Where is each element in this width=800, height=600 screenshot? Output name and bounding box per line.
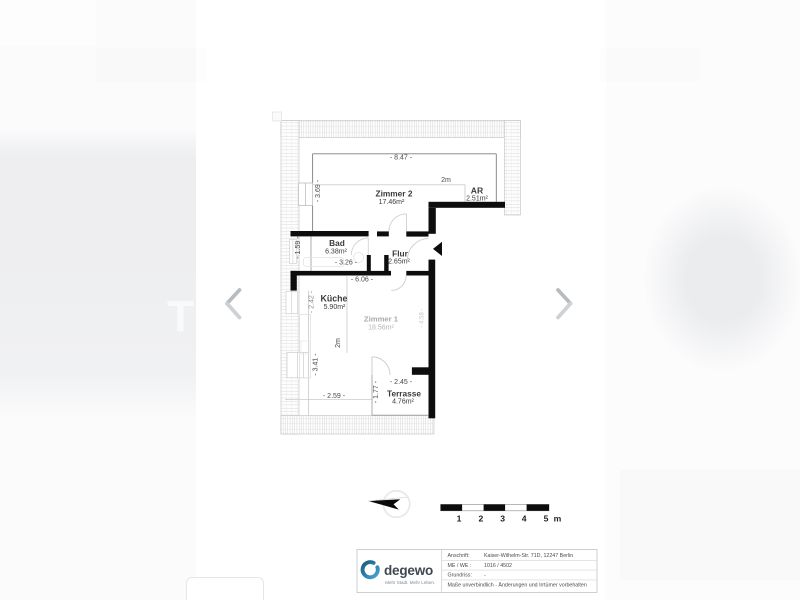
svg-text:- 2.42 -: - 2.42 -: [309, 290, 316, 313]
svg-text:- 3.69 -: - 3.69 -: [315, 179, 322, 202]
svg-text:- 4.58 -: - 4.58 -: [420, 308, 426, 327]
svg-text:Mehr Stadt. Mehr Leben.: Mehr Stadt. Mehr Leben.: [385, 580, 435, 585]
svg-text:- 2.45 -: - 2.45 -: [390, 379, 413, 386]
svg-text:1016 / 4502: 1016 / 4502: [484, 563, 512, 569]
svg-text:2.65m²: 2.65m²: [388, 259, 410, 266]
svg-text:- 1.77 -: - 1.77 -: [373, 380, 380, 403]
svg-text:- 2.59 -: - 2.59 -: [323, 393, 346, 400]
svg-text:5.90m²: 5.90m²: [324, 304, 346, 311]
svg-text:Bad: Bad: [329, 238, 345, 248]
svg-text:Zimmer 2: Zimmer 2: [376, 189, 413, 199]
svg-text:1: 1: [457, 514, 462, 524]
svg-text:- 3.26 -: - 3.26 -: [335, 260, 358, 267]
svg-text:Maße unverbindlich - Änderunge: Maße unverbindlich - Änderungen und Irrt…: [448, 581, 587, 588]
svg-text:Anschrift:: Anschrift:: [448, 553, 470, 559]
svg-text:m: m: [554, 514, 562, 524]
svg-text:Küche: Küche: [321, 294, 348, 304]
svg-text:ME / WE :: ME / WE :: [448, 563, 472, 569]
svg-text:AR: AR: [471, 186, 484, 196]
svg-text:17.46m²: 17.46m²: [379, 199, 405, 206]
svg-text:3: 3: [500, 514, 505, 524]
svg-text:Grundriss:: Grundriss:: [448, 573, 472, 579]
svg-text:2m: 2m: [335, 338, 342, 348]
svg-text:Terrasse: Terrasse: [387, 389, 421, 399]
svg-text:degewo: degewo: [384, 563, 433, 578]
svg-text:Kaiser-Wilhelm-Str. 71D, 12247: Kaiser-Wilhelm-Str. 71D, 12247 Berlin: [484, 553, 573, 559]
svg-text:- 6.06 -: - 6.06 -: [351, 276, 374, 283]
svg-text:4: 4: [522, 514, 527, 524]
svg-text:2.51m²: 2.51m²: [466, 196, 488, 203]
svg-text:2m: 2m: [441, 177, 451, 184]
svg-text:5: 5: [544, 514, 549, 524]
svg-text:- 3.41 -: - 3.41 -: [313, 353, 320, 376]
svg-text:2: 2: [479, 514, 484, 524]
svg-text:Flur: Flur: [392, 248, 408, 258]
svg-text:- 8.47 -: - 8.47 -: [390, 155, 413, 162]
svg-text:Zimmer 1: Zimmer 1: [364, 315, 399, 324]
svg-text:- 1.59 -: - 1.59 -: [295, 236, 302, 259]
svg-text:6.38m²: 6.38m²: [325, 248, 347, 255]
svg-text:18.56m²: 18.56m²: [368, 325, 394, 332]
svg-text:4.76m²: 4.76m²: [392, 399, 414, 406]
svg-text:-: -: [484, 573, 486, 579]
